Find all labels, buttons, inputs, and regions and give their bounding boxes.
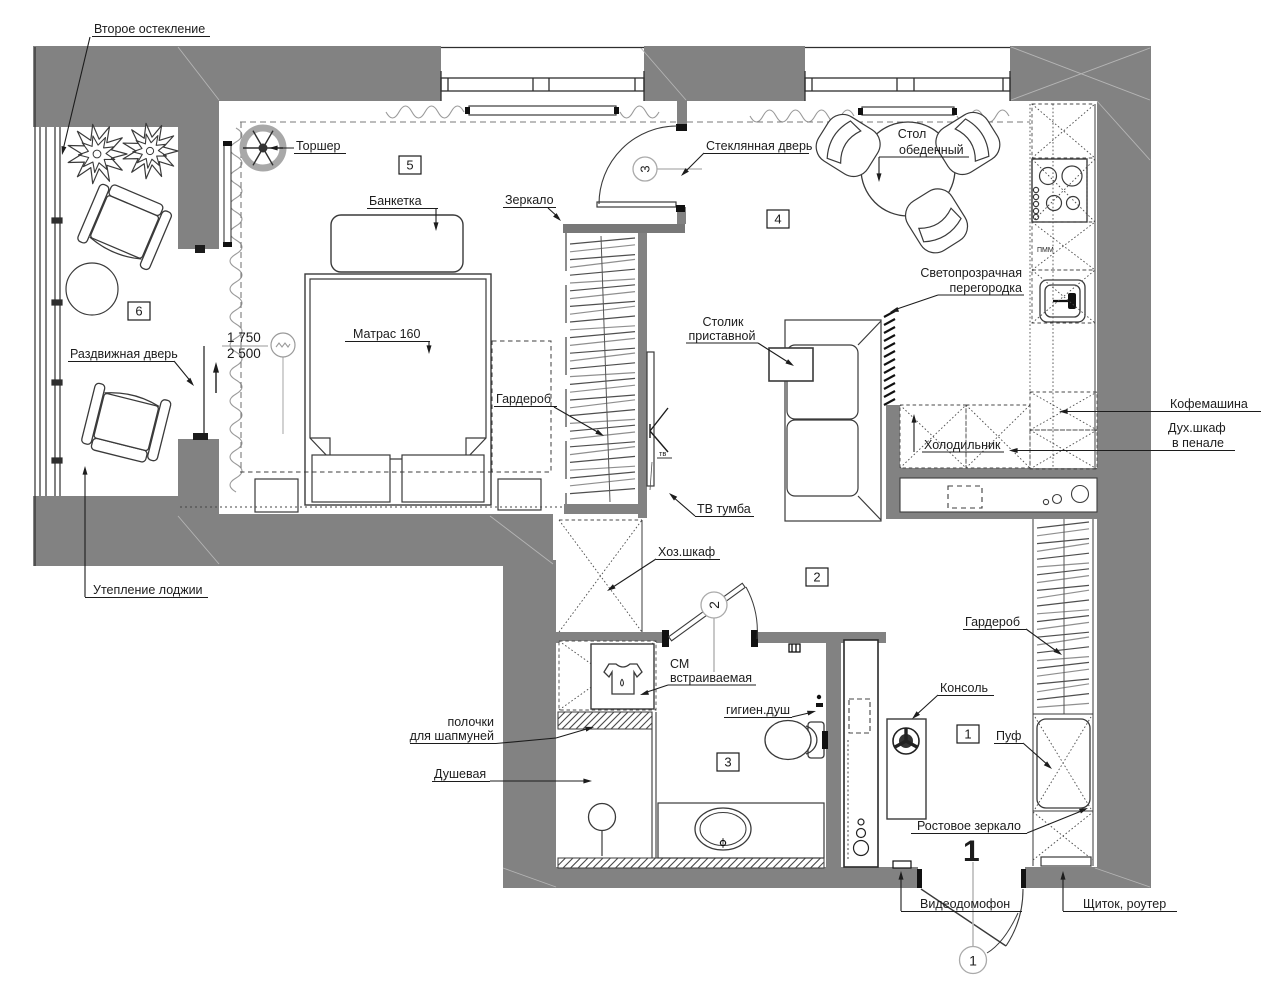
svg-text:Стеклянная дверь: Стеклянная дверь xyxy=(706,139,812,153)
svg-text:Светопрозрачная: Светопрозрачная xyxy=(920,266,1022,280)
svg-text:2: 2 xyxy=(706,601,722,609)
svg-text:Душевая: Душевая xyxy=(434,767,486,781)
svg-text:Холодильник: Холодильник xyxy=(924,438,1001,452)
svg-text:6: 6 xyxy=(135,304,142,319)
svg-text:Стол: Стол xyxy=(898,127,927,141)
svg-text:встраиваемая: встраиваемая xyxy=(670,671,752,685)
svg-text:Дух.шкаф: Дух.шкаф xyxy=(1168,421,1226,435)
svg-text:Консоль: Консоль xyxy=(940,681,988,695)
svg-text:Матрас 160: Матрас 160 xyxy=(353,327,420,341)
svg-text:Столик: Столик xyxy=(702,315,744,329)
svg-text:Зеркало: Зеркало xyxy=(505,193,554,207)
svg-text:Банкетка: Банкетка xyxy=(369,194,422,208)
svg-text:тв: тв xyxy=(659,449,666,458)
svg-text:ПММ: ПММ xyxy=(1037,247,1054,254)
svg-text:5: 5 xyxy=(406,158,413,173)
svg-text:в пенале: в пенале xyxy=(1172,436,1224,450)
svg-text:Хоз.шкаф: Хоз.шкаф xyxy=(658,545,715,559)
svg-text:СМ: СМ xyxy=(670,657,689,671)
svg-text:Утепление лоджии: Утепление лоджии xyxy=(93,583,203,597)
svg-text:Ростовое зеркало: Ростовое зеркало xyxy=(917,819,1021,833)
svg-text:Торшер: Торшер xyxy=(296,139,341,153)
svg-text:2 500: 2 500 xyxy=(227,346,261,361)
svg-text:4: 4 xyxy=(774,212,781,227)
svg-text:полочки: полочки xyxy=(447,715,494,729)
svg-text:Гардероб: Гардероб xyxy=(965,615,1020,629)
svg-text:перегородка: перегородка xyxy=(950,281,1023,295)
svg-text:приставной: приставной xyxy=(689,329,756,343)
svg-text:1: 1 xyxy=(963,835,980,868)
svg-text:3: 3 xyxy=(638,165,653,172)
svg-text:Пуф: Пуф xyxy=(996,729,1021,743)
svg-text:Второе остекление: Второе остекление xyxy=(94,22,205,36)
svg-text:для шапмуней: для шапмуней xyxy=(410,729,494,743)
svg-text:Кофемашина: Кофемашина xyxy=(1170,397,1248,411)
svg-text:ТВ тумба: ТВ тумба xyxy=(697,502,751,516)
svg-text:3: 3 xyxy=(724,755,731,770)
svg-text:обеденный: обеденный xyxy=(899,143,964,157)
svg-text:Раздвижная дверь: Раздвижная дверь xyxy=(70,347,178,361)
svg-text:Щиток, роутер: Щиток, роутер xyxy=(1083,897,1166,911)
svg-text:1: 1 xyxy=(969,953,977,969)
svg-text:2: 2 xyxy=(813,570,820,585)
svg-text:Видеодомофон: Видеодомофон xyxy=(920,897,1010,911)
svg-text:гигиен.душ: гигиен.душ xyxy=(726,703,790,717)
svg-text:1 750: 1 750 xyxy=(227,330,261,345)
svg-text:Гардероб: Гардероб xyxy=(496,392,551,406)
svg-text:1: 1 xyxy=(964,727,971,742)
